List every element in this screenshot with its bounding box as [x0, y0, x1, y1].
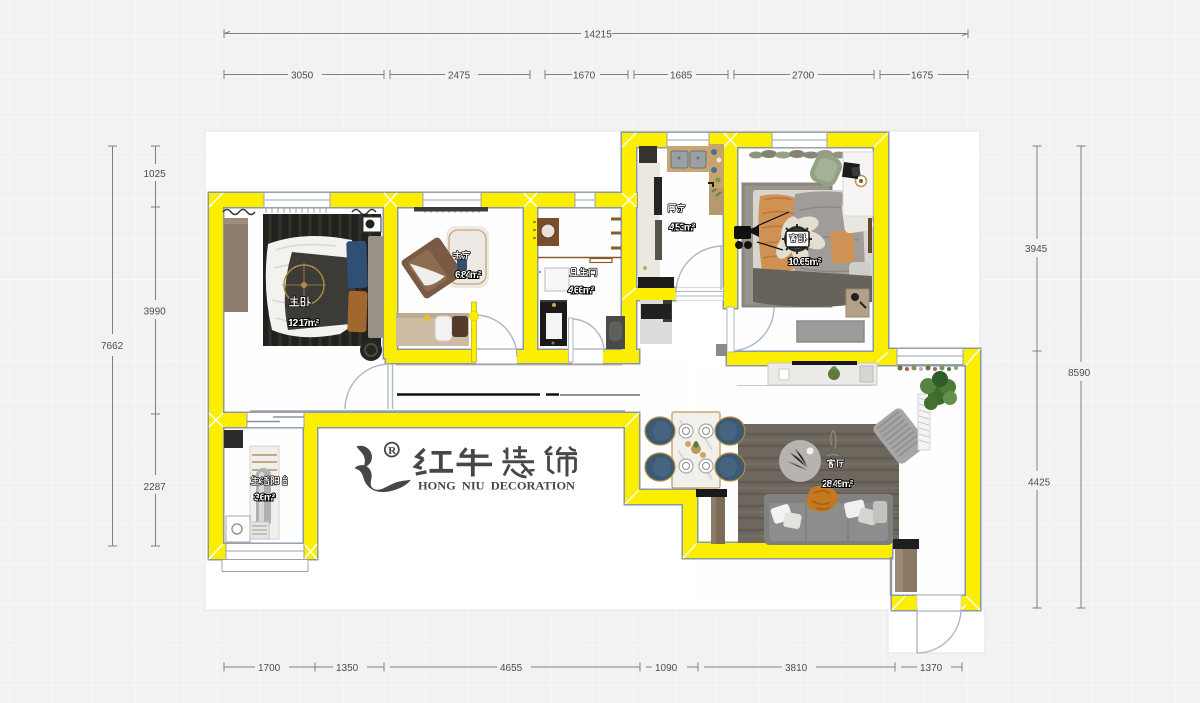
svg-text:8590: 8590 [1068, 368, 1091, 379]
svg-text:3990: 3990 [144, 307, 167, 318]
svg-text:HONG NIU DECORATION: HONG NIU DECORATION [418, 479, 575, 493]
svg-text:1350: 1350 [336, 663, 359, 674]
svg-text:1700: 1700 [258, 663, 281, 674]
svg-text:14215: 14215 [584, 30, 612, 41]
svg-text:28.49m²: 28.49m² [822, 478, 854, 490]
svg-text:3810: 3810 [785, 663, 808, 674]
svg-text:1670: 1670 [573, 71, 596, 82]
svg-text:1675: 1675 [911, 71, 934, 82]
svg-text:4425: 4425 [1028, 478, 1051, 489]
svg-text:2287: 2287 [144, 482, 167, 493]
svg-text:2475: 2475 [448, 71, 471, 82]
svg-text:2700: 2700 [792, 71, 815, 82]
svg-text:4655: 4655 [500, 663, 523, 674]
svg-text:R: R [388, 445, 397, 457]
svg-text:3.6m²: 3.6m² [254, 492, 276, 504]
svg-text:12.17m²: 12.17m² [288, 317, 320, 329]
svg-text:1025: 1025 [144, 169, 167, 180]
svg-text:10.65m²: 10.65m² [788, 256, 822, 268]
svg-text:4.53m²: 4.53m² [669, 222, 696, 234]
svg-text:4.66m²: 4.66m² [568, 285, 595, 297]
svg-text:7662: 7662 [101, 341, 124, 352]
svg-text:6.84m²: 6.84m² [455, 269, 482, 281]
svg-text:1685: 1685 [670, 71, 693, 82]
svg-text:1090: 1090 [655, 663, 678, 674]
svg-text:3945: 3945 [1025, 244, 1048, 255]
svg-text:3050: 3050 [291, 71, 314, 82]
svg-text:1370: 1370 [920, 663, 943, 674]
